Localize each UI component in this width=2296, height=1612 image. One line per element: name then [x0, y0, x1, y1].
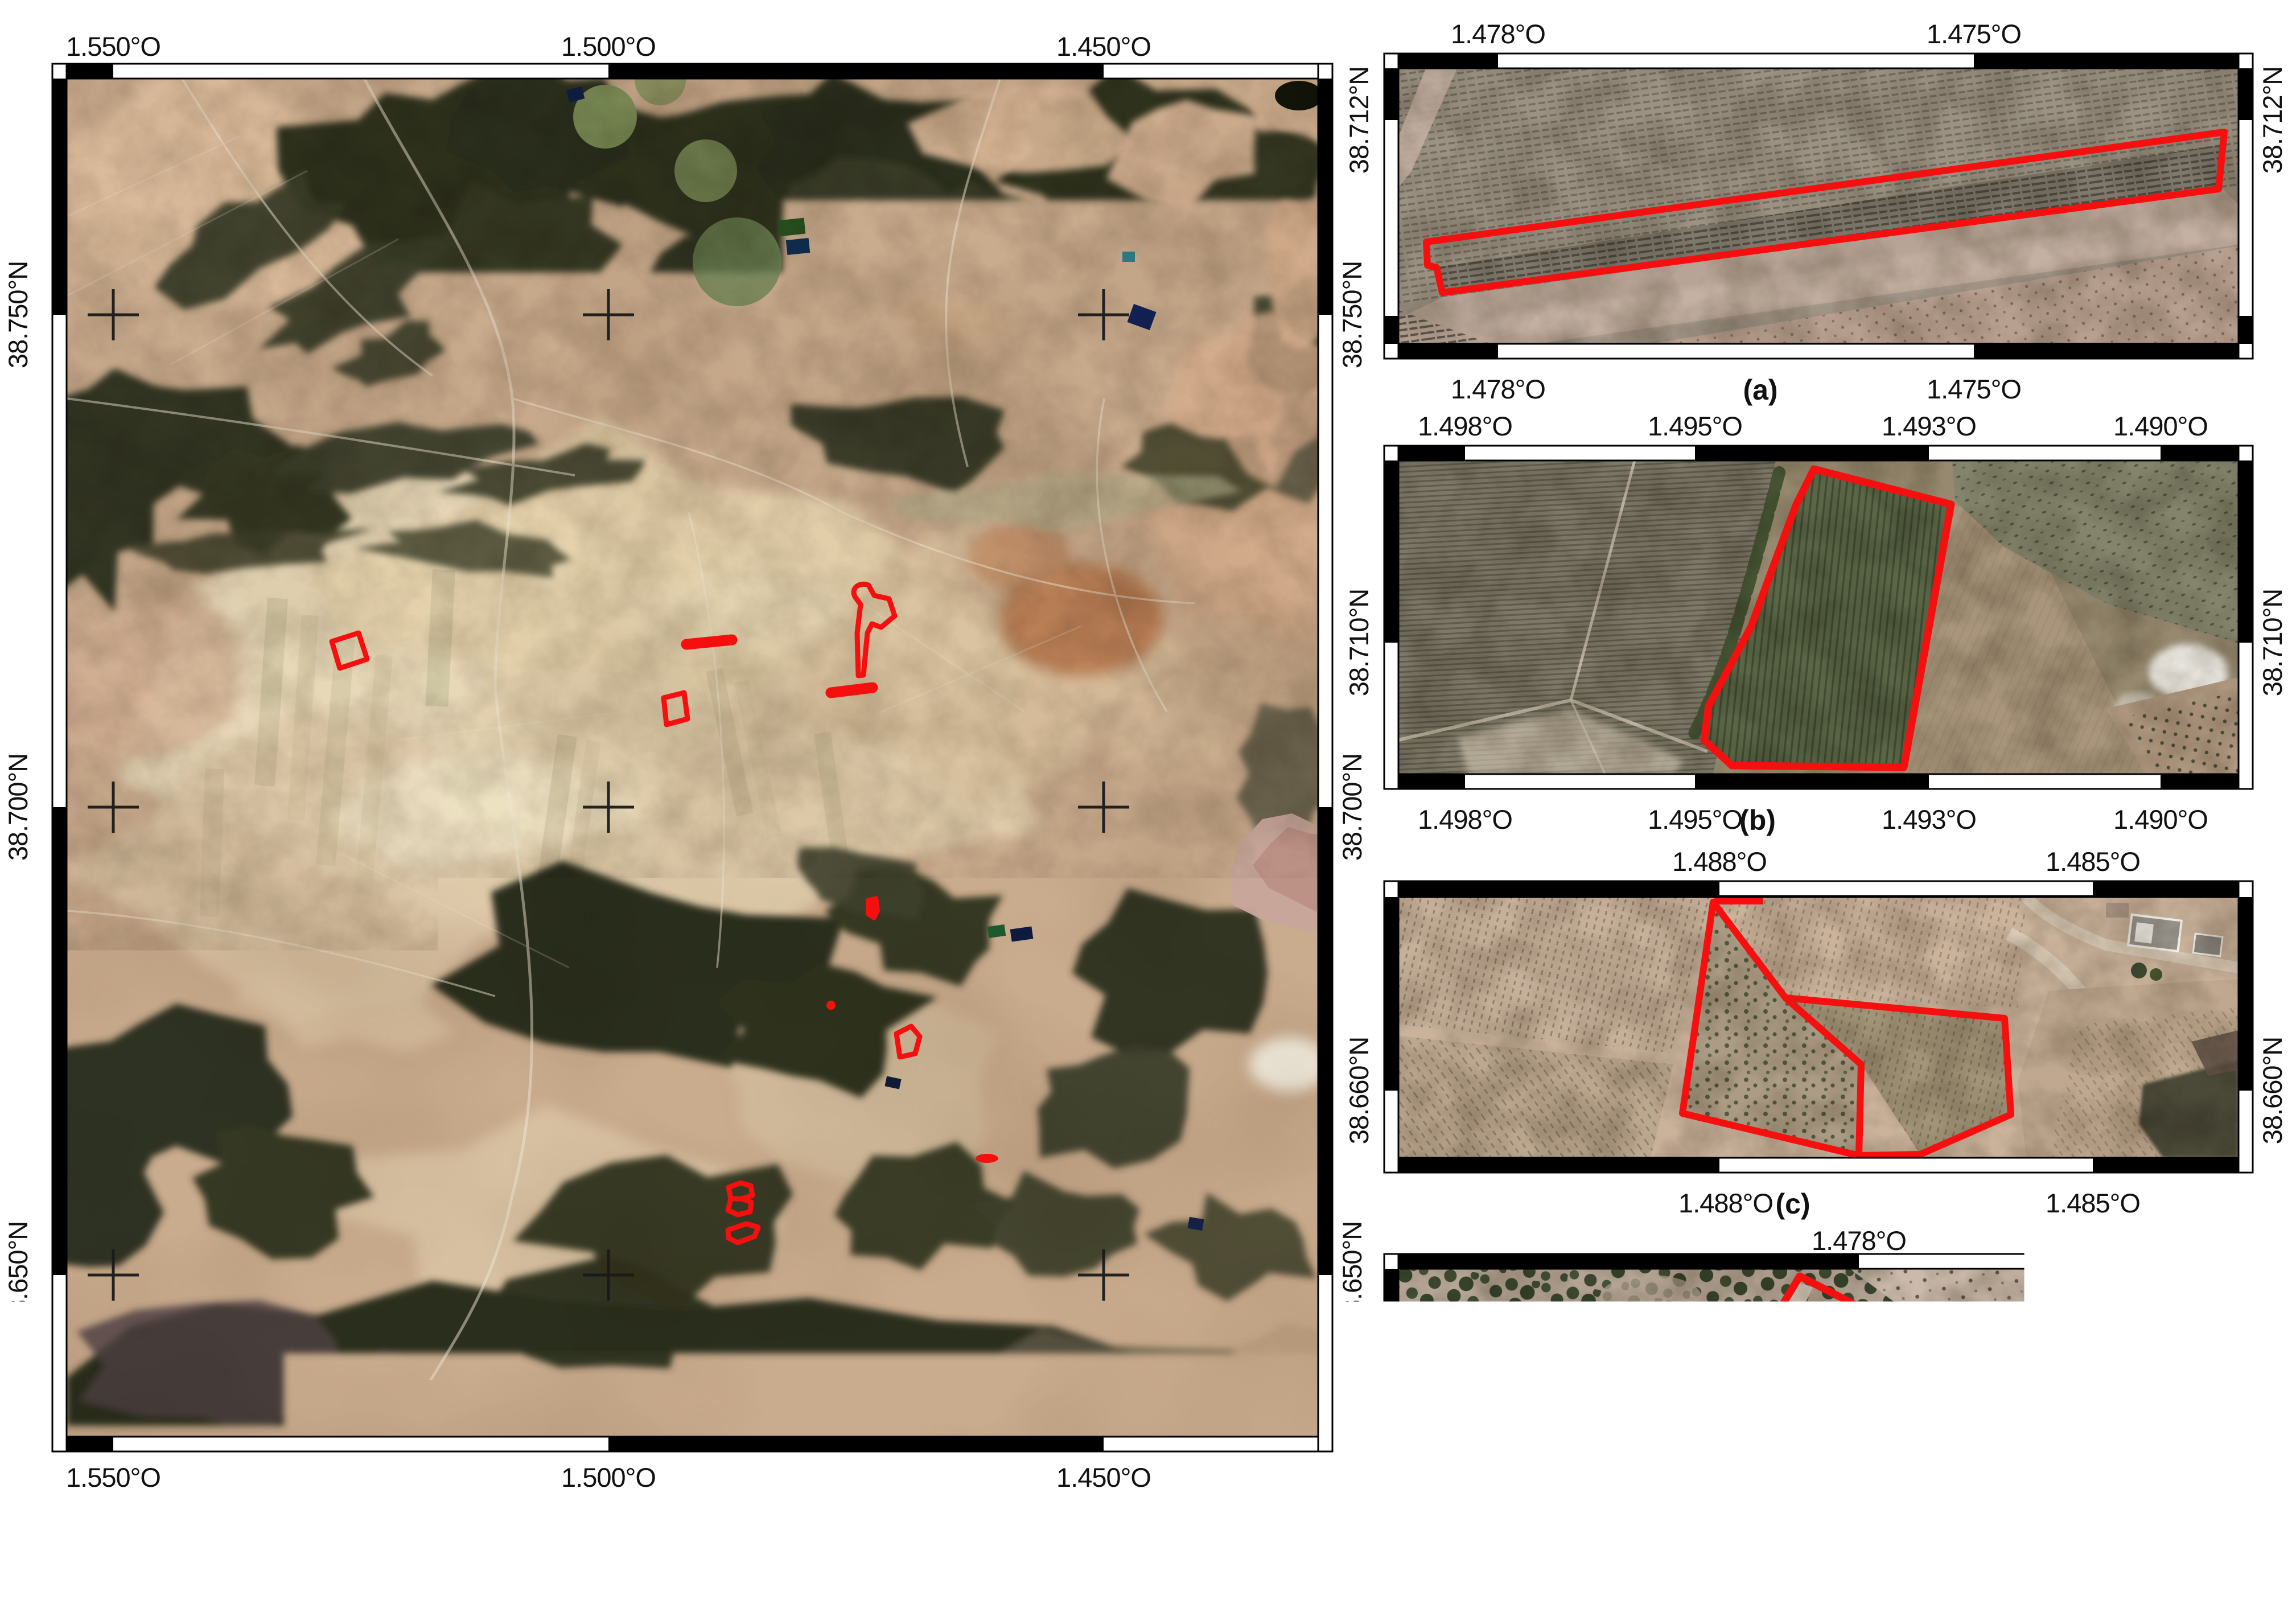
svg-text:38.700°N: 38.700°N: [1337, 754, 1367, 861]
svg-text:1.478°O: 1.478°O: [1809, 1575, 1904, 1605]
svg-text:1.495°O: 1.495°O: [1648, 804, 1742, 834]
svg-text:38.750°N: 38.750°N: [1337, 261, 1367, 369]
svg-text:1.488°O: 1.488°O: [1672, 846, 1767, 877]
svg-text:1.450°O: 1.450°O: [1056, 1462, 1151, 1492]
svg-text:1.493°O: 1.493°O: [1882, 411, 1976, 441]
svg-text:38.750°N: 38.750°N: [3, 261, 33, 369]
svg-text:38.712°N: 38.712°N: [2257, 67, 2287, 174]
svg-text:1.550°O: 1.550°O: [66, 1462, 161, 1492]
svg-text:1.485°O: 1.485°O: [2046, 1188, 2140, 1218]
svg-text:1.478°O: 1.478°O: [1451, 19, 1545, 49]
svg-text:1.485°O: 1.485°O: [2046, 846, 2140, 877]
svg-text:1.493°O: 1.493°O: [1882, 804, 1976, 834]
svg-text:1.450°O: 1.450°O: [1056, 31, 1151, 61]
svg-text:1.490°O: 1.490°O: [2113, 411, 2208, 441]
svg-text:(a): (a): [1743, 374, 1777, 406]
svg-text:1.500°O: 1.500°O: [561, 1462, 656, 1492]
svg-text:38.700°N: 38.700°N: [3, 754, 33, 861]
svg-text:38.710°N: 38.710°N: [2257, 589, 2287, 697]
svg-text:1.495°O: 1.495°O: [1648, 411, 1742, 441]
svg-text:1.490°O: 1.490°O: [2113, 804, 2208, 834]
svg-text:38.712°N: 38.712°N: [1344, 67, 1374, 174]
svg-text:(c): (c): [1775, 1188, 1810, 1220]
svg-text:38.650°N: 38.650°N: [3, 1222, 33, 1329]
svg-text:1.488°O: 1.488°O: [1678, 1188, 1773, 1218]
svg-text:(b): (b): [1739, 804, 1776, 836]
svg-text:38.660°N: 38.660°N: [2257, 1037, 2287, 1145]
svg-text:1.550°O: 1.550°O: [66, 31, 161, 61]
svg-text:38.710°N: 38.710°N: [1344, 589, 1374, 697]
svg-text:1.498°O: 1.498°O: [1418, 804, 1512, 834]
svg-text:1.475°O: 1.475°O: [1927, 374, 2021, 404]
svg-text:38.650°N: 38.650°N: [1337, 1222, 1367, 1329]
svg-text:(d): (d): [1766, 1575, 1803, 1607]
svg-text:1.478°O: 1.478°O: [1812, 1226, 1906, 1256]
svg-text:1.478°O: 1.478°O: [1451, 374, 1545, 404]
svg-text:1.500°O: 1.500°O: [561, 31, 656, 61]
svg-text:38.660°N: 38.660°N: [1344, 1037, 1374, 1145]
svg-text:1.475°O: 1.475°O: [1927, 19, 2021, 49]
svg-text:1.498°O: 1.498°O: [1418, 411, 1512, 441]
